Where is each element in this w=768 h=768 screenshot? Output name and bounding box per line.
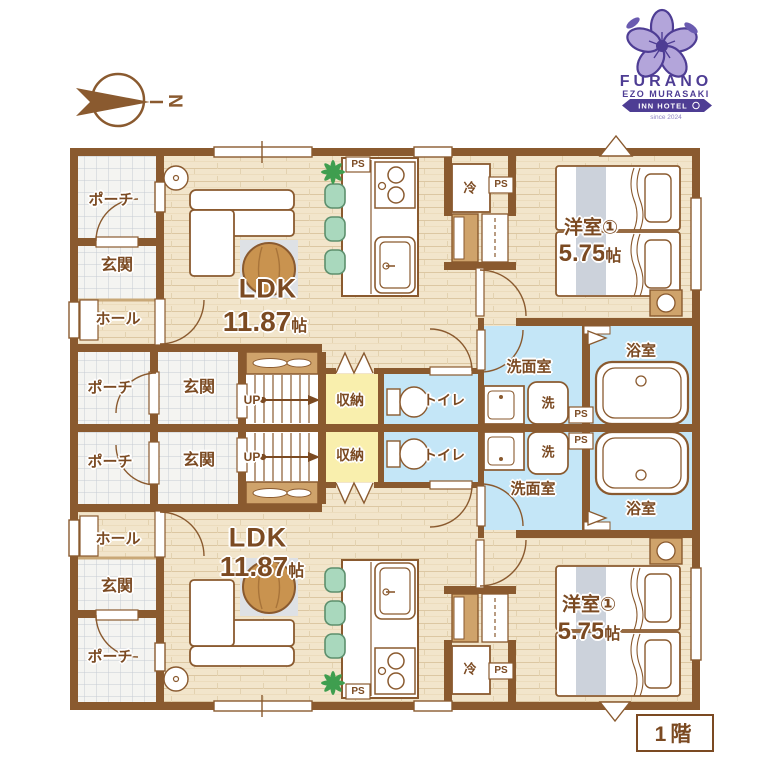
label-storage-2: 収納 <box>336 448 364 462</box>
label-ldk-1-size: 11.87帖 <box>223 308 308 336</box>
label-storage-1: 収納 <box>336 393 364 407</box>
label-bedroom-2-size: 5.75帖 <box>558 620 621 644</box>
label-fridge-1: 冷 <box>463 182 476 195</box>
compass: N <box>76 74 185 126</box>
label-entrance-1: 玄関 <box>101 258 133 274</box>
toilet-bottom <box>387 439 428 469</box>
brand-ribbon: INN HOTEL <box>622 99 712 112</box>
brand-name: FURANO <box>620 73 712 90</box>
label-ps-1: PS <box>351 160 364 170</box>
label-toilet-2: トイレ <box>423 448 465 462</box>
label-porch-2b: ポーチ <box>87 455 132 470</box>
label-laundry-1: 洗 <box>541 397 554 410</box>
label-entrance-2a: 玄関 <box>183 380 215 396</box>
label-laundry-2: 洗 <box>541 446 554 459</box>
label-washroom-2: 洗面室 <box>510 482 555 497</box>
label-entrance-3: 玄関 <box>101 579 133 595</box>
brand-ribbon-text: INN HOTEL <box>638 102 687 111</box>
label-porch-1: ポーチ <box>88 193 133 208</box>
label-fridge-2: 冷 <box>463 663 476 676</box>
label-ldk-2: LDK <box>229 525 288 552</box>
label-hall-2: ホール <box>95 532 140 547</box>
brand-logo: FURANO EZO MURASAKI INN HOTEL since 2024 <box>620 10 712 121</box>
toilet-top <box>387 387 428 417</box>
label-ldk-2-size: 11.87帖 <box>220 553 305 581</box>
label-ps-3: PS <box>574 410 587 420</box>
label-bathroom-2: 浴室 <box>626 502 656 517</box>
label-ps-2: PS <box>494 180 507 190</box>
label-entrance-2b: 玄関 <box>183 453 215 469</box>
flower-icon <box>624 10 699 82</box>
label-porch-3: ポーチ <box>87 650 132 665</box>
label-bathroom-1: 浴室 <box>626 344 656 359</box>
label-hall-1: ホール <box>95 312 140 327</box>
label-toilet-1: トイレ <box>423 393 465 407</box>
label-bedroom-2: 洋室① <box>562 596 616 615</box>
plant-top <box>321 160 345 184</box>
label-ps-5: PS <box>494 666 507 676</box>
label-ldk-1: LDK <box>239 276 298 303</box>
label-bedroom-1-size: 5.75帖 <box>559 242 622 266</box>
label-up-1: UP <box>244 394 261 406</box>
label-washroom-1: 洗面室 <box>506 360 551 375</box>
brand-subname: EZO MURASAKI <box>622 89 710 99</box>
floor-number-badge: 1階 <box>636 714 714 752</box>
floor-plan-page: N FURANO EZO MURASAKI INN HOTEL since 20… <box>0 0 768 768</box>
label-ps-6: PS <box>351 687 364 697</box>
label-porch-2a: ポーチ <box>87 381 132 396</box>
compass-north-label: N <box>164 94 185 108</box>
label-bedroom-1: 洋室① <box>564 219 618 238</box>
label-up-2: UP <box>244 451 261 463</box>
label-ps-4: PS <box>574 436 587 446</box>
brand-tagline: since 2024 <box>650 114 682 121</box>
plant-bottom <box>321 671 345 695</box>
